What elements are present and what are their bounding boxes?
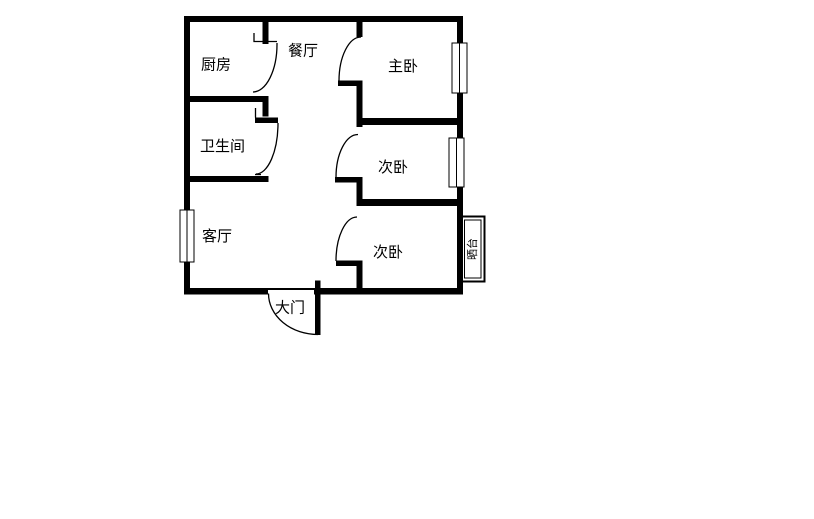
room-label-bathroom: 卫生间 (200, 137, 245, 155)
room-label-master-bedroom: 主卧 (388, 57, 418, 75)
wall-bottom-right (314, 288, 463, 295)
wall-bottom-left (184, 288, 268, 295)
master-door-arc (339, 37, 361, 81)
wall-master-bottom (357, 118, 464, 125)
wall-central-d (357, 265, 363, 295)
kitchen-door-arc (253, 43, 277, 92)
bedroom-upper-door-leaf (335, 177, 363, 183)
bedroom-lower-door-leaf (336, 261, 363, 267)
room-label-entrance: 大门 (275, 299, 305, 317)
living-room-window-icon (180, 210, 194, 262)
room-label-living-room: 客厅 (202, 227, 232, 245)
floor-plan-drawing: 厨房 餐厅 主卧 卫生间 次卧 客厅 次卧 晒台 大门 (0, 0, 814, 519)
wall-bedrooms-divider (357, 199, 464, 206)
bedroom-upper-window-icon (449, 138, 464, 187)
bathroom-door-arc (256, 123, 278, 174)
floor-plan-page: 厨房 餐厅 主卧 卫生间 次卧 客厅 次卧 晒台 大门 (0, 0, 814, 519)
wall-kitchen-bottom (184, 96, 269, 102)
room-label-kitchen: 厨房 (201, 56, 231, 74)
room-label-bedroom-lower: 次卧 (373, 243, 403, 261)
wall-top (185, 16, 463, 22)
entrance-door-leaf (315, 281, 321, 336)
master-door-leaf (338, 81, 363, 87)
entrance-threshold-line (268, 288, 315, 290)
bedroom-lower-door-arc (336, 217, 357, 261)
wall-kitchen-right-upper (263, 16, 269, 44)
room-label-dining: 餐厅 (288, 42, 318, 60)
wall-bathroom-right-upper (263, 102, 269, 117)
room-label-bedroom-upper: 次卧 (378, 158, 408, 176)
room-label-balcony: 晒台 (465, 238, 479, 260)
bedroom-upper-door-arc (336, 135, 358, 178)
master-window-icon (452, 43, 467, 93)
wall-central-a (357, 16, 363, 37)
wall-bathroom-bottom (184, 176, 269, 182)
bathroom-door-leaf (255, 118, 278, 124)
